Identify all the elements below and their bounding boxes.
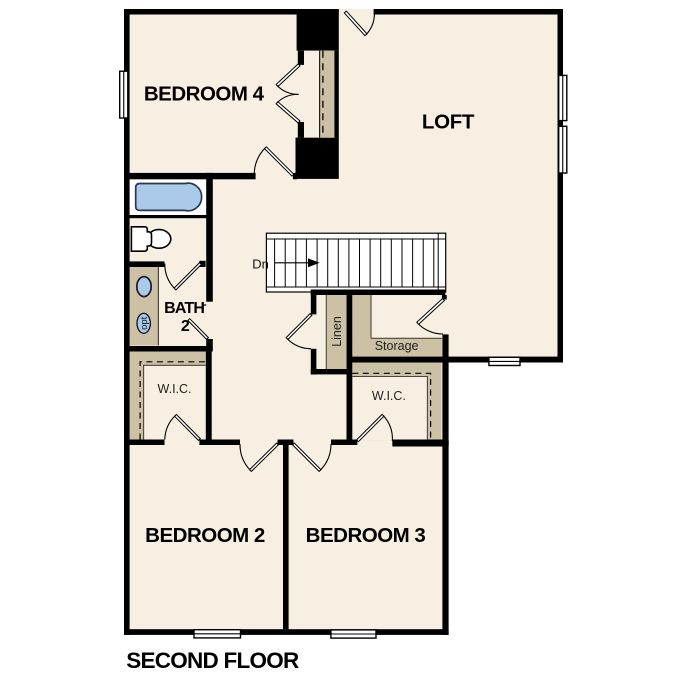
svg-text:W.I.C.: W.I.C. (157, 382, 191, 396)
svg-text:2: 2 (181, 318, 190, 335)
svg-text:SECOND FLOOR: SECOND FLOOR (126, 648, 299, 673)
svg-text:LOFT: LOFT (422, 111, 475, 134)
svg-text:BEDROOM 4: BEDROOM 4 (144, 83, 265, 106)
svg-text:BATH: BATH (164, 300, 204, 317)
svg-text:Linen: Linen (330, 316, 344, 347)
svg-text:opt: opt (139, 316, 150, 330)
svg-text:Storage: Storage (375, 339, 419, 353)
svg-text:W.I.C.: W.I.C. (372, 389, 406, 403)
svg-text:Dn: Dn (252, 257, 269, 272)
svg-text:BEDROOM 3: BEDROOM 3 (306, 524, 426, 547)
svg-text:BEDROOM 2: BEDROOM 2 (145, 524, 265, 547)
